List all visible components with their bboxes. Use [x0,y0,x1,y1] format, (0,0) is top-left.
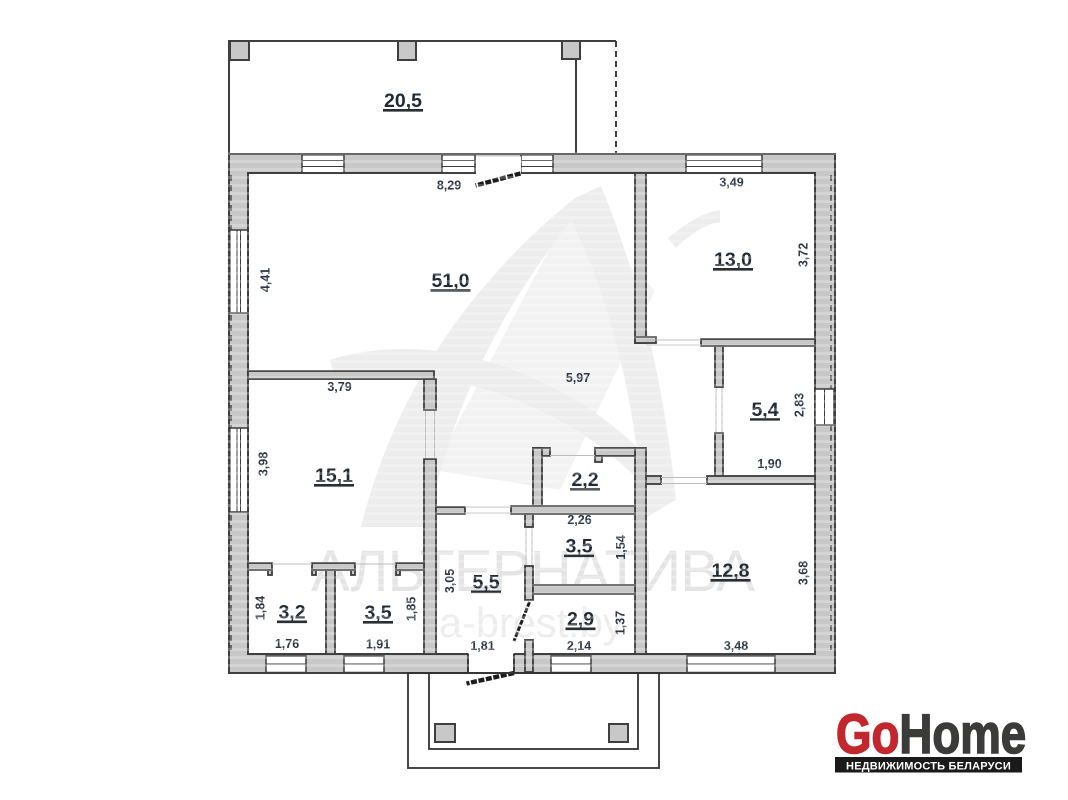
svg-text:GoHome: GoHome [836,703,1026,765]
svg-text:20,5: 20,5 [384,90,422,112]
svg-text:НЕДВИЖИМОСТЬ БЕЛАРУСИ: НЕДВИЖИМОСТЬ БЕЛАРУСИ [846,760,1011,772]
